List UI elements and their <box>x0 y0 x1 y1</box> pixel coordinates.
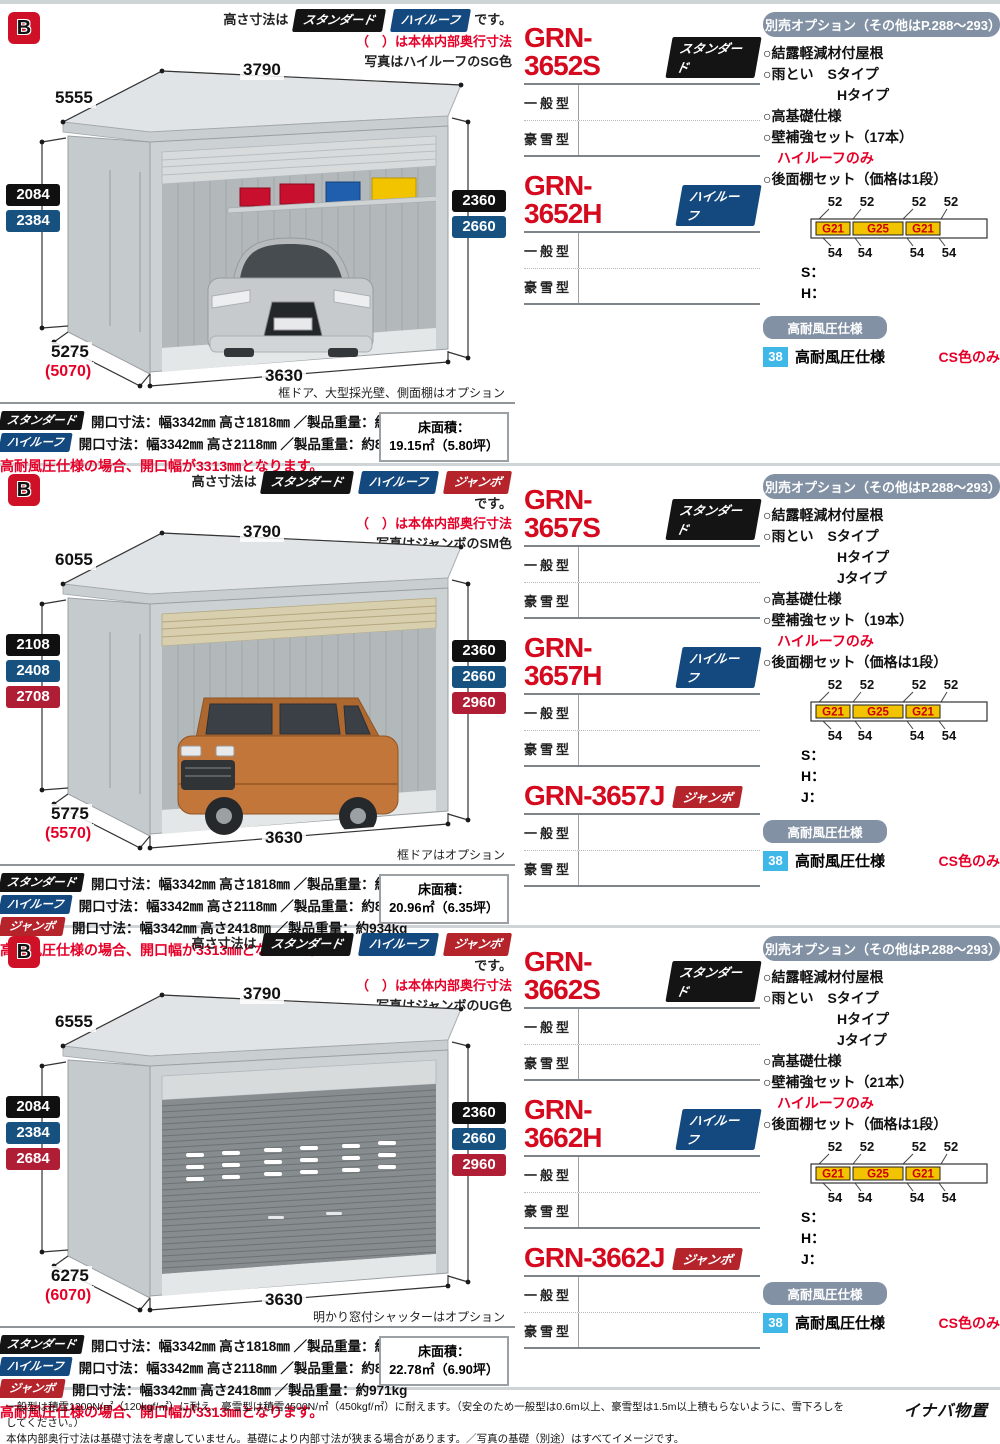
section-grn-3652: B 高さ寸法は スタンダード ハイルーフ です。 （ ）は本体内部奥行寸法 写真… <box>0 4 1000 466</box>
svg-text:52: 52 <box>828 1139 842 1154</box>
dim-height-chip: 2708 <box>6 686 60 708</box>
price-cell <box>578 695 760 730</box>
svg-text:52: 52 <box>944 677 958 692</box>
wind-spec-row: 38 高耐風圧仕様 CS色のみ <box>763 1312 1000 1333</box>
row-snow: 豪雪型 <box>524 850 760 885</box>
model-type-badge: スタンダード <box>666 499 762 540</box>
option-note-highroof-only: ハイルーフのみ <box>763 1093 1000 1114</box>
dim-bottom-width: 3630 <box>262 828 306 848</box>
options-header: 別売オプション（その他はP.288〜293） <box>763 474 1000 499</box>
footer-note-line1: 一般型は積雪1200N/㎡（120kgf/㎡）に耐え、豪雪型は積雪4500N/㎡… <box>6 1399 850 1431</box>
price-cell <box>578 1045 760 1079</box>
model-grn-3662j: GRN-3662J ジャンボ 一般型 豪雪型 <box>524 1244 760 1349</box>
dim-bottom-width: 3630 <box>262 1290 306 1310</box>
model-name: GRN-3662S <box>524 948 659 1004</box>
floor-area-label: 床面積： <box>383 1343 505 1361</box>
price-rows: 一般型 豪雪型 <box>524 1007 760 1081</box>
garage-drawing <box>28 522 498 862</box>
garage-illustration-3657: 3790 6055 2108 2408 2708 2360 2660 2960 … <box>0 522 515 862</box>
option-item: ○結露軽減材付屋根 <box>763 43 1000 64</box>
photo-caption: 明かり窓付シャッターはオプション <box>311 1308 507 1325</box>
dim-height-chip: 2660 <box>452 666 506 688</box>
shelf-size-lines: S： H： J： <box>801 1207 1000 1270</box>
svg-text:54: 54 <box>858 728 873 743</box>
model-grn-3657h: GRN-3657H ハイルーフ 一般型 豪雪型 <box>524 634 760 767</box>
spec-block: スタンダード 開口寸法：幅3342㎜ 高さ1818㎜ ／製品重量：約734kg … <box>0 402 515 476</box>
model-name: GRN-3657H <box>524 634 669 690</box>
price-cell <box>578 1157 760 1192</box>
wind-spec-header: 高耐風圧仕様 <box>763 820 887 843</box>
type-badge-standard: スタンダード <box>260 471 354 494</box>
dim-bottom-depth-inner: (6070) <box>42 1286 94 1306</box>
floor-area-box: 床面積： 22.78㎡（6.90坪） <box>379 1336 509 1386</box>
model-column: GRN-3652S スタンダード 一般型 豪雪型 GRN-3652H ハイルーフ <box>524 24 760 320</box>
options-list: ○結露軽減材付屋根 ○雨とい Sタイプ Hタイプ ○高基礎仕様 ○壁補強セット（… <box>763 43 1000 190</box>
price-cell <box>578 851 760 885</box>
price-rows: 一般型 豪雪型 <box>524 545 760 619</box>
wind-price-badge: 38 <box>763 851 788 871</box>
dim-height-chip: 2660 <box>452 1128 506 1150</box>
option-item: ○雨とい Sタイプ <box>763 526 1000 547</box>
size-line-j: J： <box>801 787 1000 808</box>
option-item: ○雨とい Sタイプ <box>763 64 1000 85</box>
spec-text: 開口寸法：幅3342㎜ 高さ2118㎜ ／製品重量：約890kg <box>79 1357 414 1377</box>
dim-top-width: 3790 <box>240 984 284 1004</box>
model-column: GRN-3657S スタンダード 一般型 豪雪型 GRN-3657H ハイルーフ <box>524 486 760 902</box>
section-grn-3657: B 高さ寸法は スタンダード ハイルーフ ジャンボ です。 （ ）は本体内部奥行… <box>0 466 1000 928</box>
option-item: ○壁補強セット（21本） <box>763 1072 1000 1093</box>
wind-spec-label: 高耐風圧仕様 <box>795 1312 885 1333</box>
model-grn-3652h: GRN-3652H ハイルーフ 一般型 豪雪型 <box>524 172 760 305</box>
row-snow: 豪雪型 <box>524 268 760 303</box>
model-type-badge: ハイルーフ <box>675 1109 762 1150</box>
option-item: ○雨とい Sタイプ <box>763 988 1000 1009</box>
row-snow: 豪雪型 <box>524 730 760 765</box>
price-cell <box>578 1313 760 1347</box>
spec-badge-standard: スタンダード <box>0 873 85 892</box>
price-cell <box>578 731 760 765</box>
price-rows: 一般型 豪雪型 <box>524 693 760 767</box>
spec-badge-standard: スタンダード <box>0 1335 85 1354</box>
dim-height-chip: 2408 <box>6 660 60 682</box>
spec-text: 開口寸法：幅3342㎜ 高さ2118㎜ ／製品重量：約858kg <box>79 895 414 915</box>
wind-spec-row: 38 高耐風圧仕様 CS色のみ <box>763 346 1000 367</box>
floor-area-value: 19.15㎡（5.80坪） <box>383 437 505 455</box>
wind-spec-label: 高耐風圧仕様 <box>795 850 885 871</box>
dim-top-depth: 6055 <box>52 550 96 570</box>
model-name: GRN-3662H <box>524 1096 669 1152</box>
price-cell <box>578 269 760 303</box>
price-cell <box>578 547 760 582</box>
svg-text:54: 54 <box>910 728 925 743</box>
inner-depth-note: （ ）は本体内部奥行寸法 <box>180 32 512 52</box>
options-column: 別売オプション（その他はP.288〜293） ○結露軽減材付屋根 ○雨とい Sタ… <box>763 474 1000 871</box>
inaba-logo: イナバ物置 <box>903 1404 988 1420</box>
type-badge-standard: スタンダード <box>260 933 354 956</box>
row-snow: 豪雪型 <box>524 1192 760 1227</box>
svg-text:54: 54 <box>858 245 873 260</box>
svg-text:52: 52 <box>912 1139 926 1154</box>
section-grn-3662: B 高さ寸法は スタンダード ハイルーフ ジャンボ です。 （ ）は本体内部奥行… <box>0 928 1000 1390</box>
model-name: GRN-3657S <box>524 486 659 542</box>
model-type-badge: ジャンボ <box>672 1248 743 1270</box>
svg-text:G21: G21 <box>822 1169 844 1181</box>
type-badge-jumbo: ジャンボ <box>443 471 512 494</box>
row-snow: 豪雪型 <box>524 582 760 617</box>
dim-height-chip: 2384 <box>6 210 60 232</box>
garage-drawing <box>28 984 498 1324</box>
model-name: GRN-3652H <box>524 172 669 228</box>
size-line-h: H： <box>801 766 1000 787</box>
model-type-badge: スタンダード <box>666 961 762 1002</box>
price-rows: 一般型 豪雪型 <box>524 231 760 305</box>
model-name: GRN-3652S <box>524 24 659 80</box>
height-note-suffix: です。 <box>474 958 512 973</box>
option-item: ○後面棚セット（価格は1段） <box>763 169 1000 190</box>
svg-text:52: 52 <box>828 677 842 692</box>
svg-text:G21: G21 <box>912 707 934 719</box>
wind-spec-label: 高耐風圧仕様 <box>795 346 885 367</box>
size-line-s: S： <box>801 262 1000 283</box>
option-item: ○高基礎仕様 <box>763 1051 1000 1072</box>
type-badge-jumbo: ジャンボ <box>443 933 512 956</box>
svg-text:52: 52 <box>944 194 958 209</box>
wind-price-badge: 38 <box>763 1313 788 1333</box>
svg-text:G25: G25 <box>867 1169 889 1181</box>
height-note-prefix: 高さ寸法は <box>223 12 288 27</box>
model-name: GRN-3657J <box>524 782 664 810</box>
spec-text: 開口寸法：幅3342㎜ 高さ1818㎜ ／製品重量：約734kg <box>91 411 426 431</box>
wind-color-note: CS色のみ <box>939 851 1000 871</box>
option-item: ○結露軽減材付屋根 <box>763 505 1000 526</box>
type-badge-highroof: ハイルーフ <box>390 9 471 32</box>
dim-bottom-depth-inner: (5570) <box>42 824 94 844</box>
svg-text:G25: G25 <box>867 224 889 236</box>
suv-car <box>178 698 398 835</box>
svg-text:54: 54 <box>942 728 957 743</box>
row-general: 一般型 <box>524 547 760 582</box>
option-item: Jタイプ <box>763 568 1000 589</box>
row-general: 一般型 <box>524 1277 760 1312</box>
model-grn-3662h: GRN-3662H ハイルーフ 一般型 豪雪型 <box>524 1096 760 1229</box>
price-rows: 一般型 豪雪型 <box>524 1275 760 1349</box>
svg-text:G21: G21 <box>822 224 844 236</box>
type-badge-highroof: ハイルーフ <box>358 471 439 494</box>
garage-illustration-3662: 3790 6555 2084 2384 2684 2360 2660 2960 … <box>0 984 515 1324</box>
dim-height-chip: 2084 <box>6 1096 60 1118</box>
wind-spec-header: 高耐風圧仕様 <box>763 1282 887 1305</box>
size-line-h: H： <box>801 283 1000 304</box>
price-cell <box>578 583 760 617</box>
svg-text:52: 52 <box>912 194 926 209</box>
options-header: 別売オプション（その他はP.288〜293） <box>763 936 1000 961</box>
svg-text:54: 54 <box>910 245 925 260</box>
price-cell <box>578 1277 760 1312</box>
wind-price-badge: 38 <box>763 347 788 367</box>
shelf-size-lines: S： H： J： <box>801 745 1000 808</box>
page-footer: 一般型は積雪1200N/㎡（120kgf/㎡）に耐え、豪雪型は積雪4500N/㎡… <box>0 1390 1000 1444</box>
spec-badge-standard: スタンダード <box>0 411 85 430</box>
option-item: ○壁補強セット（19本） <box>763 610 1000 631</box>
option-item: Hタイプ <box>763 1009 1000 1030</box>
dim-top-width: 3790 <box>240 60 284 80</box>
wind-color-note: CS色のみ <box>939 347 1000 367</box>
size-line-h: H： <box>801 1228 1000 1249</box>
dim-height-chip: 2660 <box>452 216 506 238</box>
row-general: 一般型 <box>524 233 760 268</box>
floor-area-value: 20.96㎡（6.35坪） <box>383 899 505 917</box>
dim-height-chip: 2360 <box>452 190 506 212</box>
svg-text:52: 52 <box>828 194 842 209</box>
floor-area-value: 22.78㎡（6.90坪） <box>383 1361 505 1379</box>
footer-note-line2: 本体内部奥行寸法は基礎寸法を考慮していません。基礎により内部寸法が狭まる場合があ… <box>6 1431 850 1444</box>
dim-height-chip: 2960 <box>452 1154 506 1176</box>
height-note-line: 高さ寸法は スタンダード ハイルーフ ジャンボ です。 <box>180 933 512 976</box>
height-note-line: 高さ寸法は スタンダード ハイルーフ ジャンボ です。 <box>180 471 512 514</box>
row-general: 一般型 <box>524 85 760 120</box>
wind-spec-header: 高耐風圧仕様 <box>763 316 887 339</box>
size-line-s: S： <box>801 1207 1000 1228</box>
floor-area-label: 床面積： <box>383 881 505 899</box>
type-badge-highroof: ハイルーフ <box>358 933 439 956</box>
svg-text:52: 52 <box>860 194 874 209</box>
height-note-prefix: 高さ寸法は <box>192 474 257 489</box>
spec-badge-highroof: ハイルーフ <box>0 1357 72 1376</box>
height-note-suffix: です。 <box>474 496 512 511</box>
svg-text:54: 54 <box>858 1190 873 1205</box>
floor-area-box: 床面積： 20.96㎡（6.35坪） <box>379 874 509 924</box>
b-series-icon: B <box>8 12 40 44</box>
dim-height-chip: 2384 <box>6 1122 60 1144</box>
dim-top-width: 3790 <box>240 522 284 542</box>
floor-area-box: 床面積： 19.15㎡（5.80坪） <box>379 412 509 462</box>
svg-text:54: 54 <box>942 245 957 260</box>
model-column: GRN-3662S スタンダード 一般型 豪雪型 GRN-3662H ハイルーフ <box>524 948 760 1364</box>
height-note-line: 高さ寸法は スタンダード ハイルーフ です。 <box>180 9 512 32</box>
svg-text:G21: G21 <box>822 707 844 719</box>
svg-text:52: 52 <box>860 1139 874 1154</box>
dim-top-depth: 6555 <box>52 1012 96 1032</box>
option-item: Hタイプ <box>763 85 1000 106</box>
svg-text:G21: G21 <box>912 1169 934 1181</box>
size-line-s: S： <box>801 745 1000 766</box>
model-type-badge: ジャンボ <box>672 786 743 808</box>
row-general: 一般型 <box>524 1157 760 1192</box>
option-item: ○後面棚セット（価格は1段） <box>763 652 1000 673</box>
svg-text:G21: G21 <box>912 224 934 236</box>
b-series-icon: B <box>8 474 40 506</box>
option-item: ○結露軽減材付屋根 <box>763 967 1000 988</box>
price-rows: 一般型 豪雪型 <box>524 813 760 887</box>
dim-height-chip: 2960 <box>452 692 506 714</box>
dim-top-depth: 5555 <box>52 88 96 108</box>
svg-text:54: 54 <box>828 1190 843 1205</box>
dim-height-chip: 2360 <box>452 640 506 662</box>
price-cell <box>578 85 760 120</box>
model-type-badge: スタンダード <box>666 37 762 78</box>
type-badge-standard: スタンダード <box>292 9 386 32</box>
spec-text: 開口寸法：幅3342㎜ 高さ1818㎜ ／製品重量：約770kg <box>91 873 426 893</box>
svg-text:52: 52 <box>944 1139 958 1154</box>
price-cell <box>578 233 760 268</box>
row-snow: 豪雪型 <box>524 120 760 155</box>
model-type-badge: ハイルーフ <box>675 647 762 688</box>
wind-spec-row: 38 高耐風圧仕様 CS色のみ <box>763 850 1000 871</box>
photo-caption: 框ドアはオプション <box>395 846 507 863</box>
rear-shelf-diagram: 52 52 52 52 <box>795 677 1000 743</box>
row-general: 一般型 <box>524 815 760 850</box>
rear-shelf-diagram: 52 52 52 52 <box>795 1139 1000 1205</box>
price-rows: 一般型 豪雪型 <box>524 1155 760 1229</box>
option-item: ○後面棚セット（価格は1段） <box>763 1114 1000 1135</box>
options-list: ○結露軽減材付屋根 ○雨とい Sタイプ Hタイプ Jタイプ ○高基礎仕様 ○壁補… <box>763 967 1000 1135</box>
dim-bottom-depth: 5275 <box>48 342 92 362</box>
garage-drawing <box>28 60 498 400</box>
row-snow: 豪雪型 <box>524 1312 760 1347</box>
model-type-badge: ハイルーフ <box>675 185 762 226</box>
row-general: 一般型 <box>524 1009 760 1044</box>
model-grn-3662s: GRN-3662S スタンダード 一般型 豪雪型 <box>524 948 760 1081</box>
price-cell <box>578 1009 760 1044</box>
price-cell <box>578 815 760 850</box>
svg-text:54: 54 <box>910 1190 925 1205</box>
rear-shelf-diagram: 52 52 52 52 <box>795 194 1000 260</box>
options-header: 別売オプション（その他はP.288〜293） <box>763 12 1000 37</box>
model-grn-3657s: GRN-3657S スタンダード 一般型 豪雪型 <box>524 486 760 619</box>
wind-color-note: CS色のみ <box>939 1313 1000 1333</box>
dim-height-chip: 2084 <box>6 184 60 206</box>
option-note-highroof-only: ハイルーフのみ <box>763 631 1000 652</box>
spec-text: 開口寸法：幅3342㎜ 高さ1818㎜ ／製品重量：約797kg <box>91 1335 426 1355</box>
price-cell <box>578 121 760 155</box>
garage-illustration-3652: 3790 5555 2084 2384 2360 2660 5275 (5070… <box>0 60 515 400</box>
svg-text:54: 54 <box>828 728 843 743</box>
photo-caption: 框ドア、大型採光壁、側面棚はオプション <box>276 384 507 401</box>
dim-height-chip: 2684 <box>6 1148 60 1170</box>
spec-badge-highroof: ハイルーフ <box>0 433 72 452</box>
dim-bottom-depth-inner: (5070) <box>42 362 94 382</box>
dim-bottom-depth: 6275 <box>48 1266 92 1286</box>
svg-text:G25: G25 <box>867 707 889 719</box>
option-item: Jタイプ <box>763 1030 1000 1051</box>
dim-bottom-width: 3630 <box>262 366 306 386</box>
option-item: ○壁補強セット（17本） <box>763 127 1000 148</box>
spec-text: 開口寸法：幅3342㎜ 高さ2118㎜ ／製品重量：約818kg <box>79 433 414 453</box>
model-grn-3652s: GRN-3652S スタンダード 一般型 豪雪型 <box>524 24 760 157</box>
options-column: 別売オプション（その他はP.288〜293） ○結露軽減材付屋根 ○雨とい Sタ… <box>763 12 1000 367</box>
price-cell <box>578 1193 760 1227</box>
size-line-j: J： <box>801 1249 1000 1270</box>
svg-text:52: 52 <box>860 677 874 692</box>
floor-area-label: 床面積： <box>383 419 505 437</box>
dim-bottom-depth: 5775 <box>48 804 92 824</box>
options-list: ○結露軽減材付屋根 ○雨とい Sタイプ Hタイプ Jタイプ ○高基礎仕様 ○壁補… <box>763 505 1000 673</box>
option-item: ○高基礎仕様 <box>763 589 1000 610</box>
row-snow: 豪雪型 <box>524 1044 760 1079</box>
spec-badge-highroof: ハイルーフ <box>0 895 72 914</box>
svg-text:54: 54 <box>828 245 843 260</box>
option-item: Hタイプ <box>763 547 1000 568</box>
option-item: ○高基礎仕様 <box>763 106 1000 127</box>
options-column: 別売オプション（その他はP.288〜293） ○結露軽減材付屋根 ○雨とい Sタ… <box>763 936 1000 1333</box>
dim-height-chip: 2360 <box>452 1102 506 1124</box>
dim-height-chip: 2108 <box>6 634 60 656</box>
row-general: 一般型 <box>524 695 760 730</box>
model-name: GRN-3662J <box>524 1244 664 1272</box>
shelf-size-lines: S： H： <box>801 262 1000 304</box>
option-note-highroof-only: ハイルーフのみ <box>763 148 1000 169</box>
svg-text:54: 54 <box>942 1190 957 1205</box>
height-note-suffix: です。 <box>474 12 512 27</box>
svg-text:52: 52 <box>912 677 926 692</box>
catalog-page: B 高さ寸法は スタンダード ハイルーフ です。 （ ）は本体内部奥行寸法 写真… <box>0 0 1000 1444</box>
model-grn-3657j: GRN-3657J ジャンボ 一般型 豪雪型 <box>524 782 760 887</box>
b-series-icon: B <box>8 936 40 968</box>
price-rows: 一般型 豪雪型 <box>524 83 760 157</box>
height-note-prefix: 高さ寸法は <box>192 936 257 951</box>
